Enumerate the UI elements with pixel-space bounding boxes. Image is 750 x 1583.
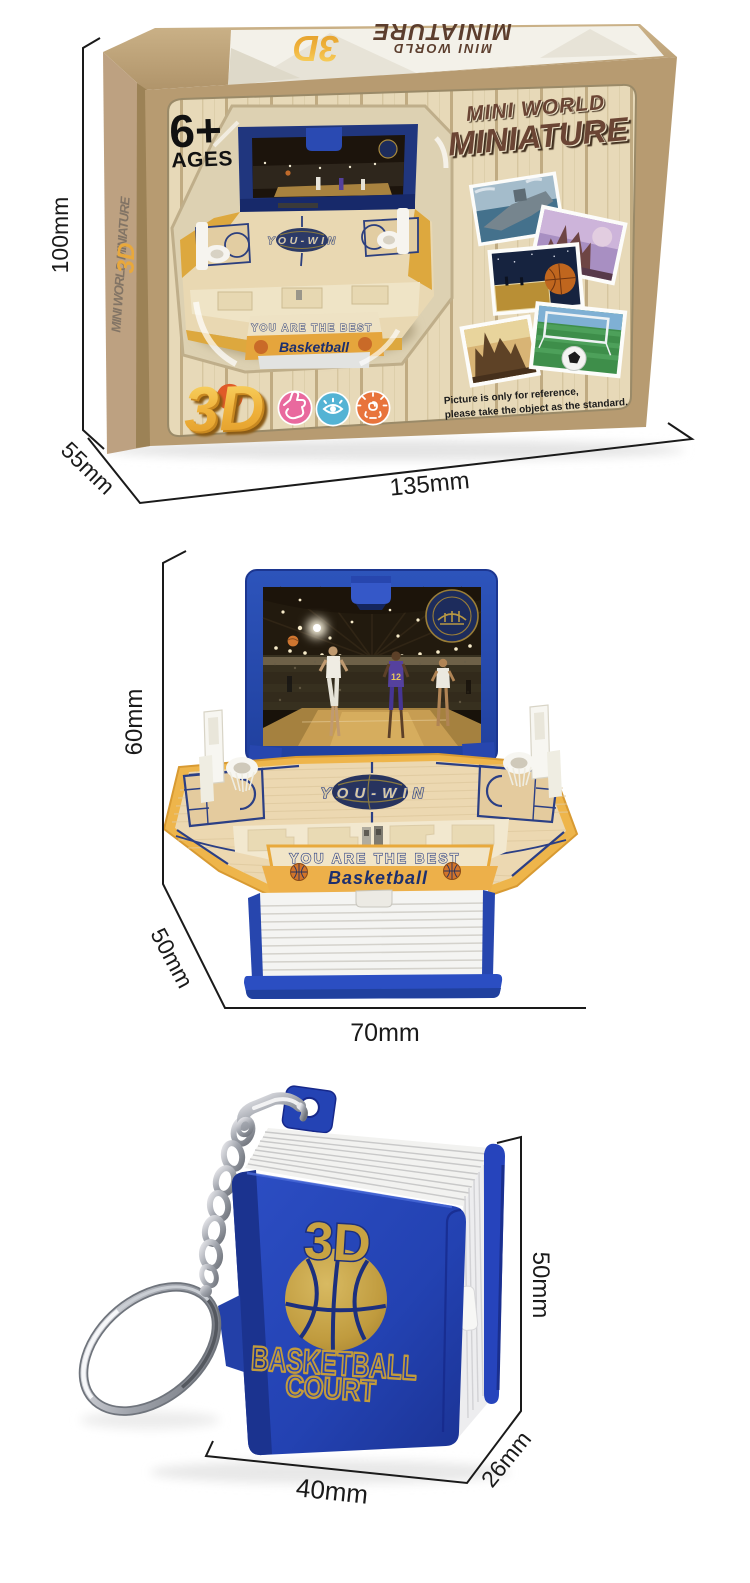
svg-text:Basketball: Basketball	[328, 868, 428, 888]
svg-text:12: 12	[391, 672, 401, 682]
svg-text:60mm: 60mm	[121, 689, 148, 756]
svg-text:3D: 3D	[112, 242, 140, 274]
svg-text:100mm: 100mm	[47, 197, 73, 274]
svg-text:3D: 3D	[183, 373, 266, 446]
svg-text:YOU ARE THE BEST: YOU ARE THE BEST	[251, 323, 372, 334]
svg-text:3D: 3D	[303, 1212, 373, 1274]
svg-text:YOU-WIN: YOU-WIN	[321, 785, 430, 802]
svg-text:COURT: COURT	[285, 1370, 377, 1408]
svg-text:3D: 3D	[293, 28, 339, 69]
svg-text:YOU ARE THE BEST: YOU ARE THE BEST	[289, 851, 461, 866]
svg-text:70mm: 70mm	[350, 1019, 419, 1047]
svg-text:AGES: AGES	[171, 147, 233, 172]
svg-text:Basketball: Basketball	[279, 339, 350, 355]
svg-text:MINIATURE: MINIATURE	[372, 19, 512, 45]
svg-text:50mm: 50mm	[527, 1252, 554, 1319]
svg-text:YOU-WIN: YOU-WIN	[267, 235, 338, 247]
